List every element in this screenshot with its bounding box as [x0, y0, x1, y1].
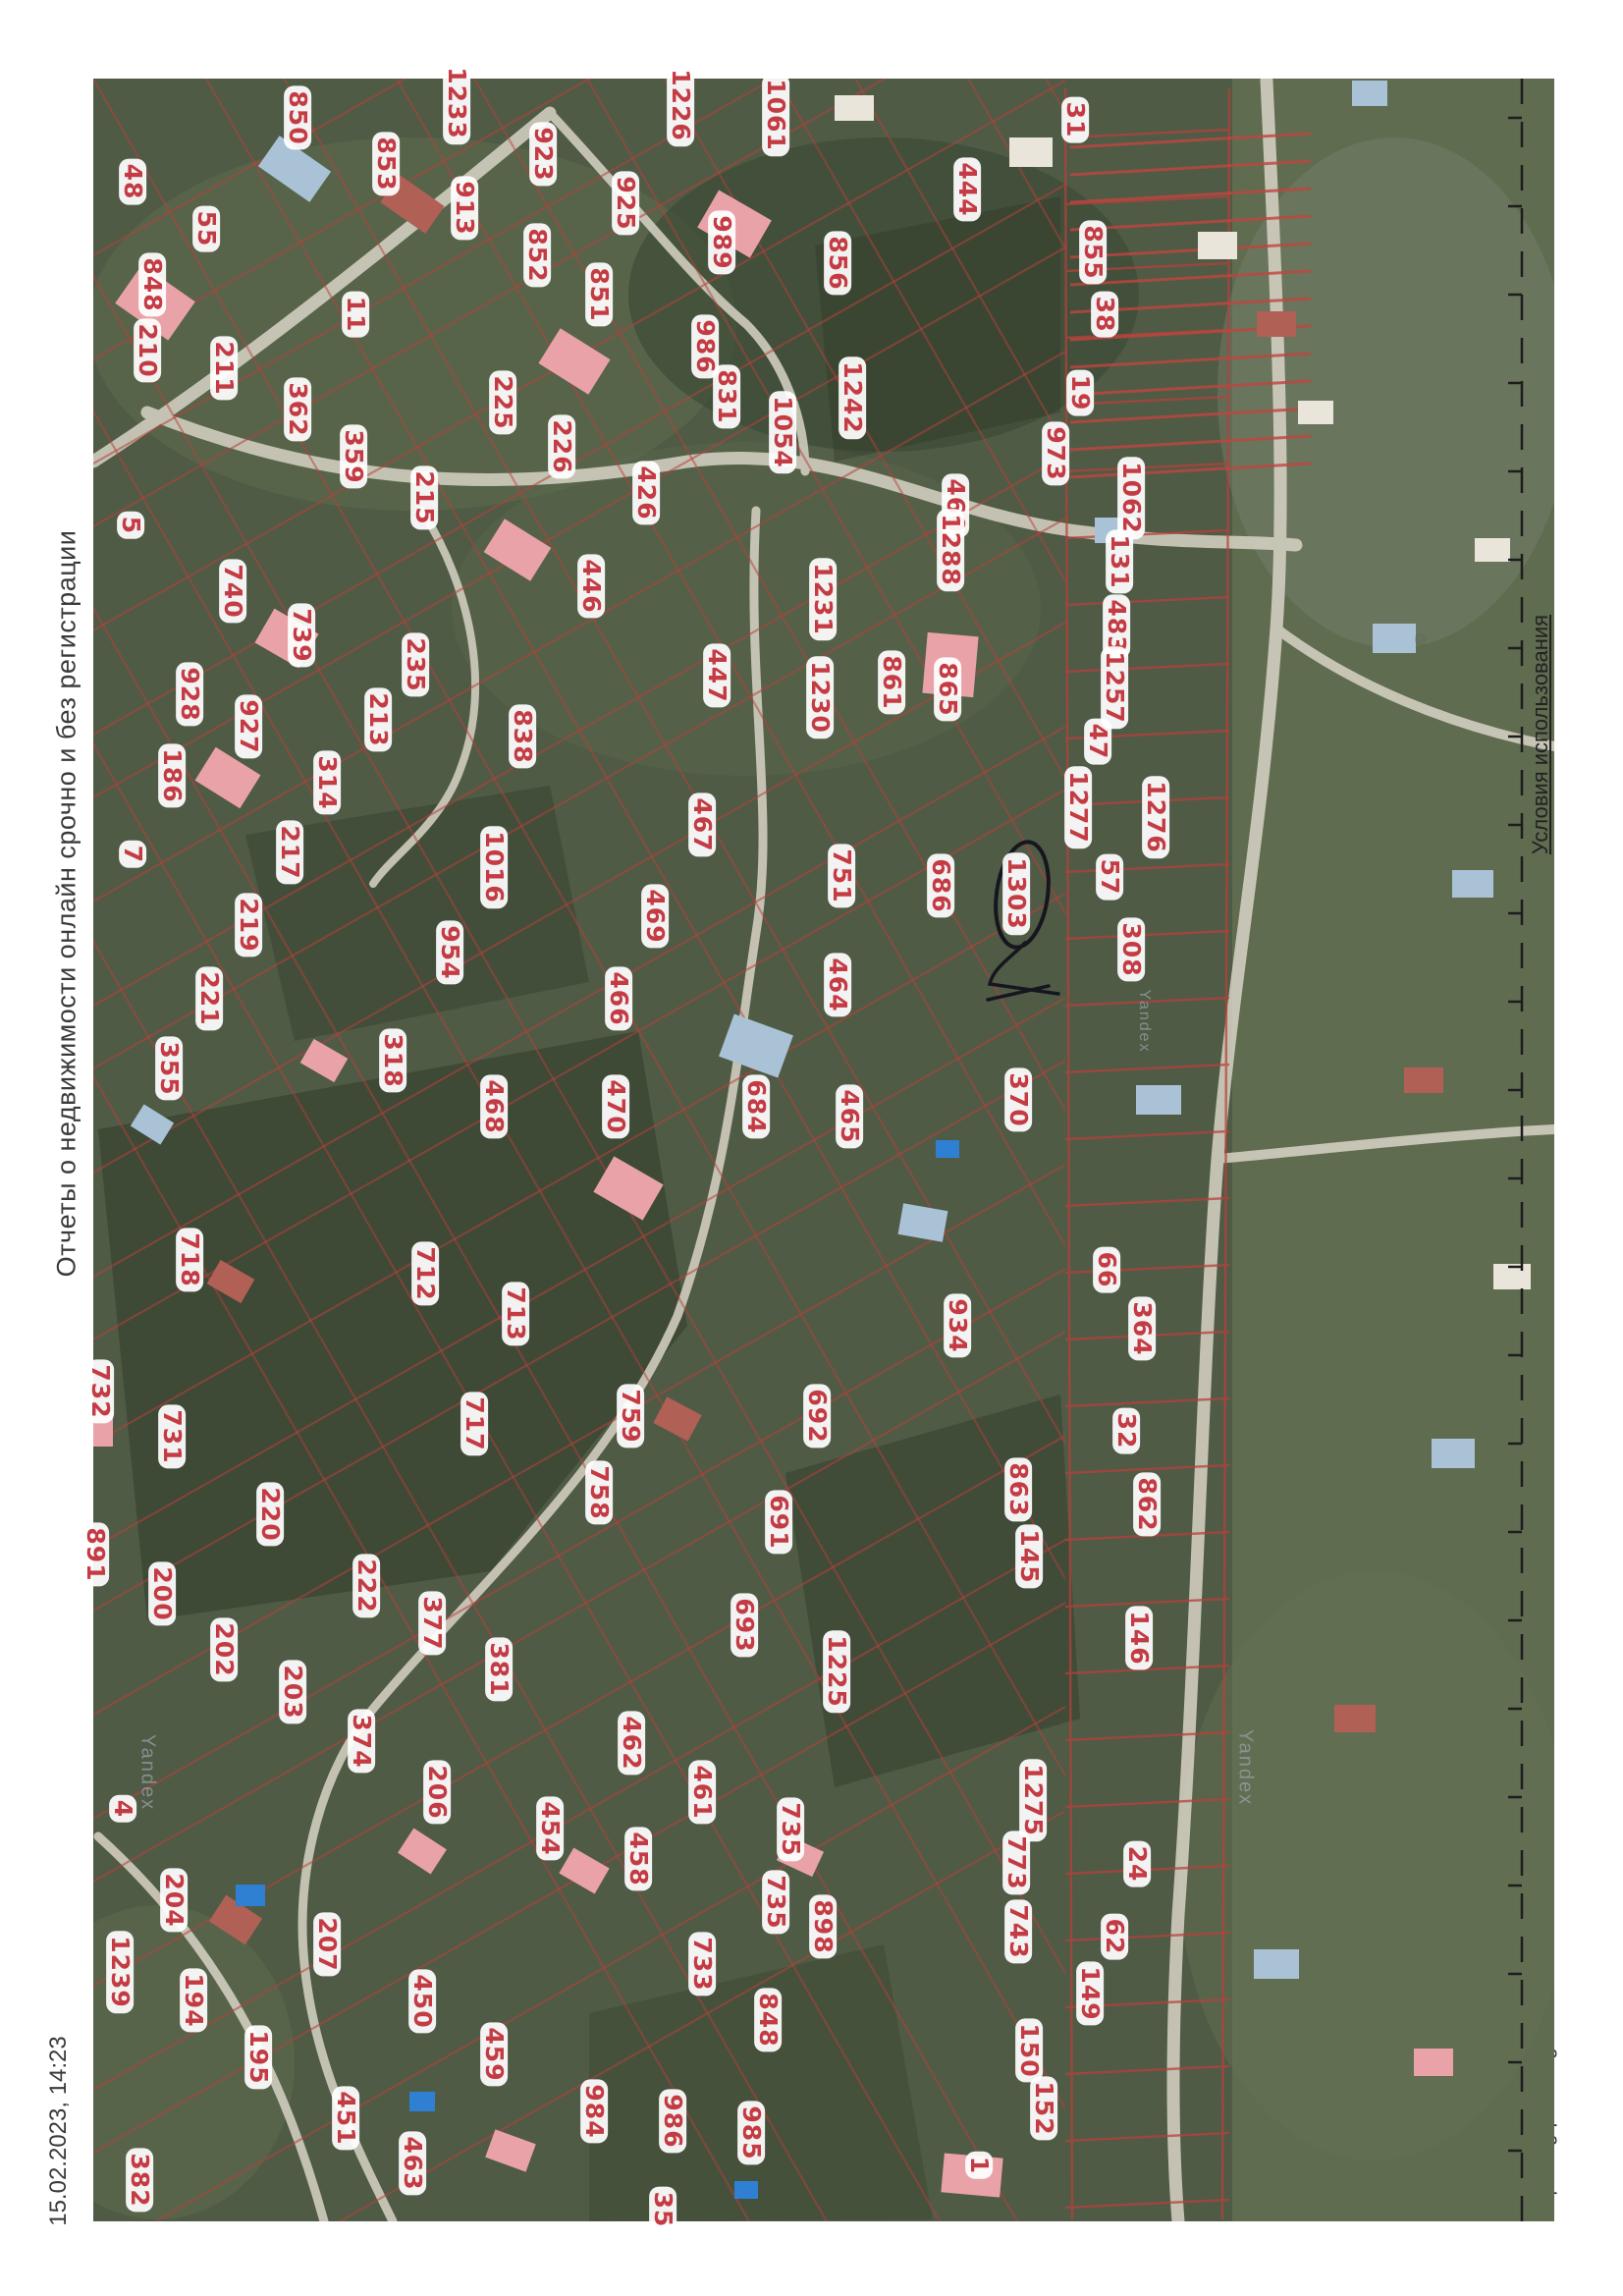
parcel-label: 374	[348, 1709, 375, 1773]
parcel-label: 831	[713, 364, 740, 428]
parcel-label: 458	[624, 1827, 652, 1890]
parcel-label: 751	[828, 844, 855, 907]
parcel-label: 213	[364, 687, 392, 751]
parcel-label: 314	[313, 750, 341, 814]
parcel-label: 382	[126, 2148, 153, 2212]
parcel-label: 459	[480, 2022, 508, 2086]
parcel-label: 146	[1125, 1606, 1153, 1669]
parcel-label: 470	[602, 1074, 629, 1138]
parcel-label: 973	[1042, 421, 1069, 485]
parcel-label: 838	[509, 704, 536, 768]
parcel-label: 1061	[762, 74, 789, 156]
parcel-label: 691	[765, 1490, 792, 1554]
parcel-label: 145	[1015, 1524, 1043, 1588]
parcel-label: 47	[1084, 719, 1111, 765]
parcel-label: 862	[1133, 1472, 1161, 1536]
parcel-label: 355	[155, 1036, 183, 1100]
parcel-label: 217	[276, 820, 303, 884]
parcel-label: 863	[1004, 1457, 1032, 1521]
yandex-watermark: Yandex	[1234, 1729, 1257, 1806]
parcel-label: 461	[688, 1760, 716, 1824]
parcel-label: 464	[824, 953, 851, 1016]
parcel-label: 686	[927, 853, 954, 917]
parcel-label: 739	[288, 603, 315, 667]
parcel-label: 913	[451, 176, 478, 240]
parcel-label-highlighted: 1303	[1002, 852, 1030, 935]
parcel-label: 986	[659, 2089, 686, 2153]
parcel-label: 206	[423, 1760, 451, 1824]
parcel-label: 925	[612, 171, 639, 235]
parcel-label: 48	[119, 159, 146, 205]
parcel-label: 32	[1112, 1408, 1140, 1454]
parcel-label: 856	[824, 231, 851, 295]
parcel-label: 195	[244, 2025, 272, 2089]
parcel-label: 759	[617, 1384, 644, 1448]
print-datetime: 15.02.2023, 14:23	[45, 2036, 73, 2226]
parcel-label: 225	[489, 370, 516, 434]
parcel-label: 928	[176, 662, 203, 726]
parcel-label: 1	[965, 2152, 993, 2179]
parcel-label: 35	[649, 2187, 676, 2233]
parcel-label: 19	[1066, 370, 1094, 416]
parcel-label: 1230	[806, 656, 834, 738]
parcel-label: 855	[1079, 220, 1107, 284]
parcel-label: 211	[210, 336, 238, 400]
parcel-label: 848	[754, 1988, 782, 2051]
parcel-label: 985	[737, 2101, 765, 2164]
parcel-label: 466	[605, 966, 632, 1030]
parcel-label: 131	[1106, 529, 1133, 593]
parcel-label: 447	[703, 643, 730, 707]
parcel-label: 38	[1091, 292, 1118, 338]
parcel-label: 732	[86, 1359, 114, 1423]
parcel-label: 861	[878, 650, 905, 714]
parcel-label: 207	[313, 1912, 341, 1976]
parcel-label: 718	[176, 1228, 203, 1291]
parcel-label: 712	[411, 1241, 439, 1305]
parcel-label: 362	[284, 377, 311, 441]
parcel-label: 853	[372, 132, 400, 195]
parcel-label: 235	[402, 632, 429, 696]
parcel-label: 204	[160, 1868, 188, 1932]
terms-of-use-link[interactable]: Условия использования	[1528, 615, 1553, 854]
parcel-label: 891	[81, 1522, 109, 1586]
parcel-label: 865	[934, 657, 961, 721]
parcel-label: 444	[953, 157, 981, 221]
parcel-label: 848	[138, 252, 166, 316]
parcel-label: 150	[1015, 2018, 1043, 2082]
parcel-label: 451	[332, 2086, 359, 2150]
parcel-label: 57	[1096, 854, 1123, 901]
parcel-label: 200	[148, 1561, 176, 1625]
parcel-label: 1226	[667, 64, 694, 146]
parcel-label: 934	[944, 1293, 971, 1357]
parcel-label: 1277	[1064, 766, 1092, 848]
parcel-label: 1276	[1142, 776, 1169, 858]
parcel-label: 684	[742, 1074, 770, 1138]
yandex-watermark: Yandex	[1135, 989, 1153, 1053]
parcel-label: 11	[342, 292, 369, 338]
parcel-label: 927	[235, 694, 262, 758]
parcel-label: 149	[1076, 1961, 1104, 2025]
parcel-label: 743	[1004, 1899, 1032, 1963]
satellite-map-image: Yandex Yandex Yandex © Условия использов…	[93, 79, 1554, 2221]
parcel-label: 1242	[839, 356, 866, 439]
parcel-label: 62	[1101, 1914, 1128, 1960]
parcel-label: 1016	[480, 826, 508, 908]
parcel-label: 989	[708, 210, 735, 274]
parcel-label: 465	[836, 1084, 863, 1148]
parcel-label: 731	[158, 1404, 186, 1468]
parcel-label: 454	[536, 1796, 564, 1860]
parcel-label: 5	[117, 512, 144, 539]
parcel-label: 740	[219, 559, 246, 623]
parcel-label: 733	[688, 1932, 716, 1995]
parcel-label: 1288	[937, 509, 964, 591]
parcel-label: 359	[340, 424, 367, 488]
parcel-label: 1239	[106, 1931, 134, 2013]
parcel-label: 222	[352, 1554, 380, 1617]
parcel-label: 1257	[1101, 646, 1128, 729]
parcel-label: 66	[1093, 1247, 1120, 1293]
parcel-label: 468	[480, 1074, 508, 1138]
parcel-label: 215	[410, 465, 438, 529]
parcel-label: 1054	[769, 391, 796, 473]
parcel-label: 758	[585, 1460, 613, 1524]
parcel-label: 31	[1061, 97, 1089, 143]
parcel-label: 220	[256, 1482, 284, 1546]
parcel-label: 1233	[443, 62, 470, 144]
parcel-label: 1231	[809, 558, 837, 640]
parcel-label: 984	[580, 2079, 608, 2143]
parcel-label: 210	[134, 318, 161, 382]
parcel-label: 426	[632, 461, 660, 524]
parcel-label: 692	[803, 1384, 831, 1448]
parcel-label: 898	[809, 1894, 837, 1958]
parcel-label: 923	[529, 122, 557, 186]
parcel-label: 186	[158, 743, 186, 807]
parcel-label: 24	[1123, 1841, 1151, 1887]
parcel-label: 467	[688, 793, 716, 856]
parcel-label: 1062	[1117, 457, 1145, 539]
parcel-label: 850	[284, 85, 311, 149]
parcel-label: 713	[502, 1282, 529, 1345]
parcel-label: 735	[777, 1797, 804, 1861]
parcel-label: 450	[408, 1969, 436, 2033]
parcel-label: 370	[1004, 1067, 1032, 1131]
parcel-label: 1275	[1019, 1759, 1047, 1841]
parcel-label: 462	[618, 1711, 645, 1775]
parcel-label: 152	[1030, 2076, 1057, 2140]
parcel-label: 194	[180, 1968, 207, 2032]
parcel-label: 463	[399, 2131, 426, 2195]
parcel-label: 851	[585, 262, 613, 326]
parcel-label: 318	[379, 1028, 406, 1092]
parcel-label: 202	[210, 1617, 238, 1681]
parcel-label: 693	[730, 1593, 758, 1657]
parcel-label: 954	[436, 920, 463, 984]
side-title: Отчеты о недвижимости онлайн срочно и бе…	[52, 530, 82, 1278]
parcel-label: 308	[1117, 917, 1145, 981]
parcel-label: 219	[235, 893, 262, 957]
yandex-watermark: Yandex	[136, 1734, 159, 1811]
parcel-label: 4	[109, 1795, 136, 1823]
scanned-report-page: Отчеты о недвижимости онлайн срочно и бе…	[0, 0, 1623, 2296]
parcel-label: 381	[485, 1637, 513, 1701]
parcel-label: 55	[192, 206, 220, 252]
parcel-label: 364	[1128, 1296, 1156, 1360]
parcel-label: 773	[1002, 1831, 1030, 1894]
parcel-label: 7	[119, 841, 146, 868]
parcel-label: 735	[762, 1870, 789, 1934]
parcel-label: 717	[460, 1392, 488, 1455]
parcel-label: 377	[418, 1591, 446, 1655]
parcel-label: 852	[523, 223, 551, 287]
parcel-label: 1225	[823, 1630, 850, 1713]
parcel-label: 446	[577, 554, 605, 618]
parcel-label: 469	[641, 884, 669, 948]
parcel-label: 203	[279, 1660, 306, 1723]
copyright-watermark: ©	[1413, 631, 1431, 645]
parcel-label: 226	[548, 414, 575, 478]
parcel-label: 221	[195, 966, 223, 1030]
